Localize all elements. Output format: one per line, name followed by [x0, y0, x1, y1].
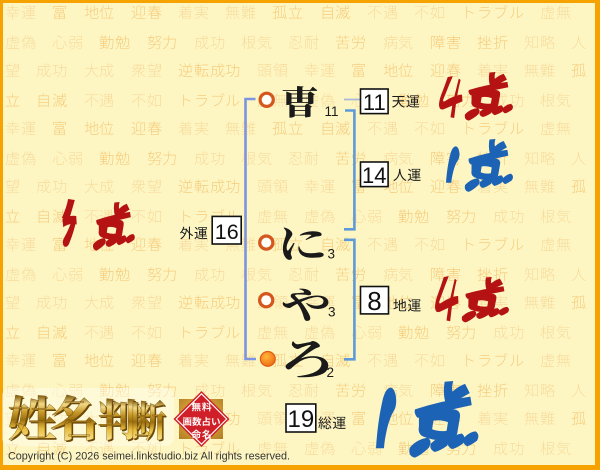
svg-text:Copyright (C) 2026 seimei.link: Copyright (C) 2026 seimei.linkstudio.biz… [8, 451, 290, 463]
svg-text:8: 8 [367, 286, 381, 316]
svg-text:11: 11 [325, 104, 339, 119]
svg-text:19: 19 [288, 406, 315, 433]
svg-text:11: 11 [363, 90, 386, 115]
svg-text:3: 3 [328, 305, 336, 320]
svg-text:16: 16 [215, 220, 239, 244]
svg-text:2: 2 [327, 365, 335, 380]
svg-text:3: 3 [328, 247, 336, 262]
svg-text:14: 14 [362, 163, 386, 188]
